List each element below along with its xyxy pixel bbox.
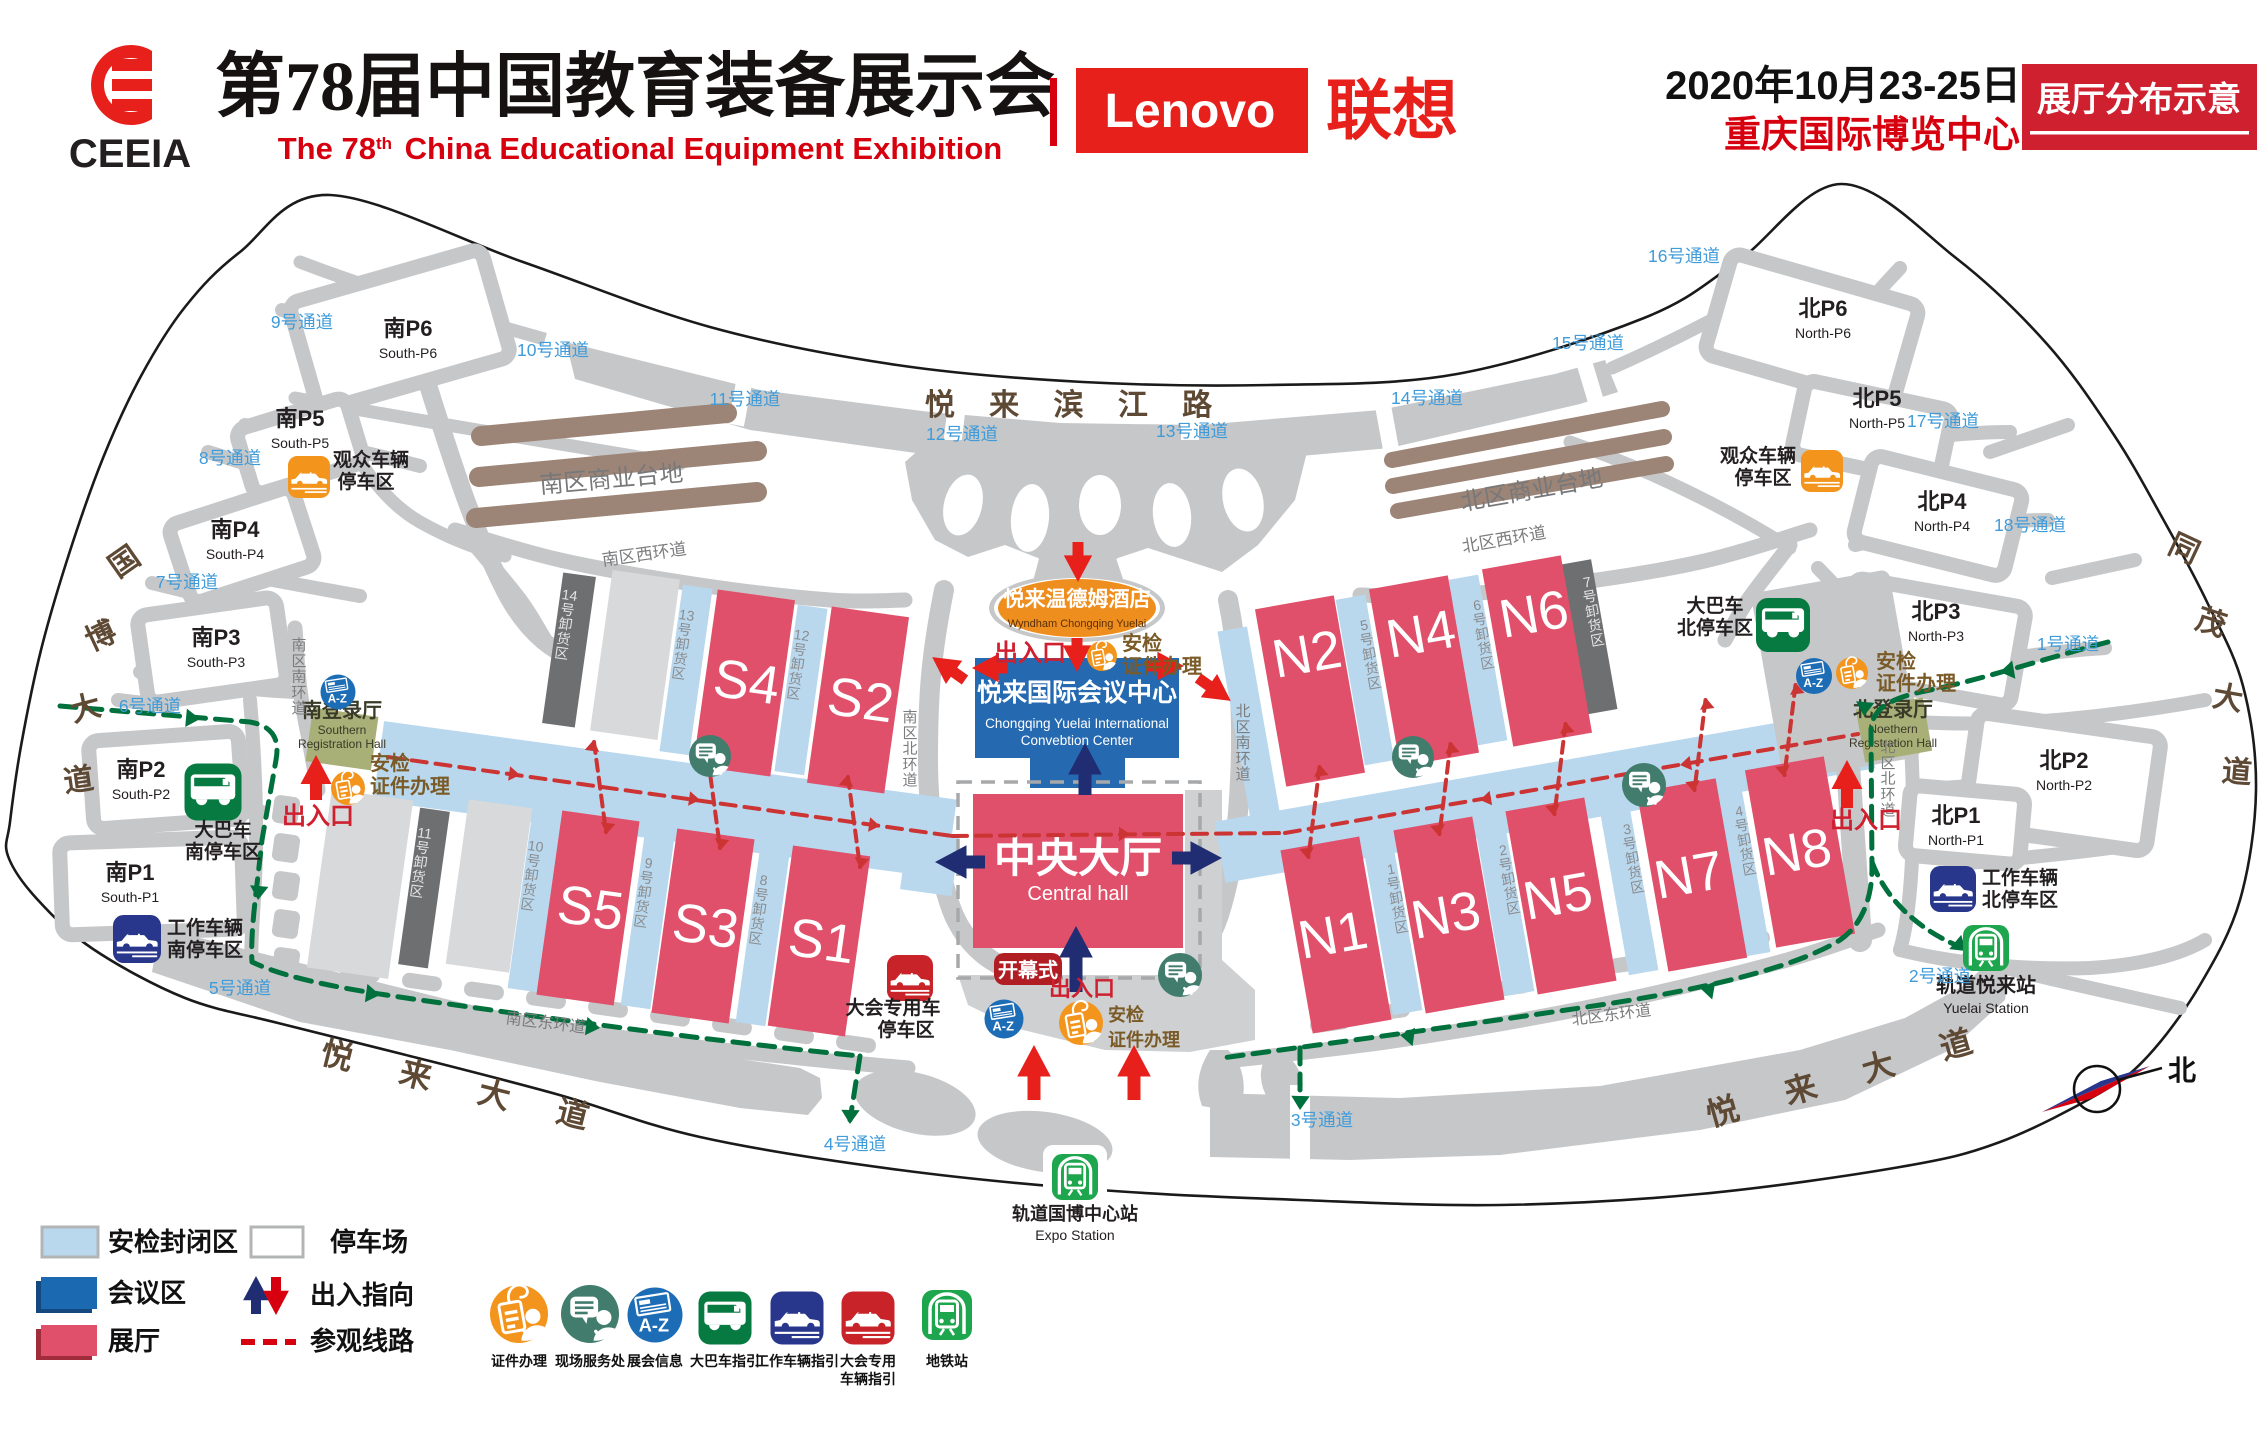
svg-text:N7: N7 <box>1650 840 1728 911</box>
svg-text:8号通道: 8号通道 <box>199 448 261 468</box>
svg-text:3号通道: 3号通道 <box>1291 1110 1353 1130</box>
svg-text:大会专用车: 大会专用车 <box>845 996 940 1019</box>
svg-text:停车区: 停车区 <box>1734 466 1791 489</box>
svg-text:出入口: 出入口 <box>1830 807 1902 834</box>
svg-text:证件办理: 证件办理 <box>491 1353 547 1369</box>
svg-text:Central hall: Central hall <box>1027 883 1128 905</box>
svg-text:大会专用: 大会专用 <box>840 1353 896 1369</box>
svg-text:中央大厅: 中央大厅 <box>994 834 1162 881</box>
svg-text:Convebtion Center: Convebtion Center <box>1021 733 1134 748</box>
svg-text:S2: S2 <box>824 666 898 735</box>
svg-text:大巴车指引: 大巴车指引 <box>690 1353 760 1369</box>
svg-text:会议区: 会议区 <box>108 1278 186 1308</box>
svg-text:4号通道: 4号通道 <box>824 1134 886 1154</box>
svg-text:安检: 安检 <box>1122 631 1162 655</box>
svg-text:大巴车: 大巴车 <box>1686 594 1743 617</box>
svg-text:1号通道: 1号通道 <box>2037 634 2099 654</box>
svg-text:北区南环道: 北区南环道 <box>1235 703 1250 783</box>
svg-text:地铁站: 地铁站 <box>926 1353 968 1369</box>
svg-text:工作车辆: 工作车辆 <box>1982 866 2058 889</box>
svg-text:北P1: 北P1 <box>1932 803 1981 828</box>
svg-text:展会信息: 展会信息 <box>627 1353 683 1369</box>
svg-text:11号通道: 11号通道 <box>710 389 781 409</box>
svg-text:N5: N5 <box>1519 861 1597 932</box>
svg-text:北: 北 <box>2168 1055 2196 1086</box>
svg-text:South-P6: South-P6 <box>379 345 438 361</box>
svg-text:安检封闭区: 安检封闭区 <box>108 1227 238 1257</box>
svg-text:道: 道 <box>2220 755 2253 790</box>
svg-text:2号通道: 2号通道 <box>1909 966 1971 986</box>
svg-text:北停车区: 北停车区 <box>1982 888 2058 911</box>
svg-text:南区北环道: 南区北环道 <box>902 709 917 789</box>
svg-text:10号通道: 10号通道 <box>517 340 589 360</box>
svg-text:停车区: 停车区 <box>877 1018 934 1041</box>
svg-text:South-P3: South-P3 <box>187 654 246 670</box>
svg-text:停车区: 停车区 <box>337 470 394 493</box>
svg-text:18号通道: 18号通道 <box>1994 515 2066 535</box>
svg-text:Expo Station: Expo Station <box>1035 1227 1114 1243</box>
svg-text:7号通道: 7号通道 <box>156 572 218 592</box>
svg-text:Yuelai Station: Yuelai Station <box>1943 1000 2029 1016</box>
svg-text:观众车辆: 观众车辆 <box>333 448 409 471</box>
svg-text:N4: N4 <box>1382 599 1460 670</box>
svg-text:大巴车: 大巴车 <box>194 818 251 841</box>
svg-text:N6: N6 <box>1495 579 1573 650</box>
svg-text:S4: S4 <box>710 648 784 717</box>
svg-text:Registration Hall: Registration Hall <box>298 737 386 751</box>
svg-text:North-P2: North-P2 <box>2036 777 2092 793</box>
svg-text:N1: N1 <box>1294 900 1372 971</box>
svg-text:出入口: 出入口 <box>994 640 1066 667</box>
svg-text:观众车辆: 观众车辆 <box>1720 444 1796 467</box>
svg-text:南P1: 南P1 <box>106 860 155 885</box>
svg-text:6号通道: 6号通道 <box>119 696 181 716</box>
svg-text:轨道国博中心站: 轨道国博中心站 <box>1012 1203 1138 1224</box>
svg-text:North-P3: North-P3 <box>1908 628 1964 644</box>
svg-text:证件办理: 证件办理 <box>1122 654 1202 678</box>
svg-text:North-P6: North-P6 <box>1795 325 1851 341</box>
svg-text:北P5: 北P5 <box>1853 386 1902 411</box>
svg-text:出入口: 出入口 <box>1049 976 1115 1001</box>
svg-text:Noethern: Noethern <box>1868 722 1917 736</box>
svg-text:12号通道: 12号通道 <box>926 424 998 444</box>
svg-text:参观线路: 参观线路 <box>310 1326 415 1356</box>
svg-text:Wyndham Chongqing Yuelai: Wyndham Chongqing Yuelai <box>1008 618 1147 630</box>
svg-text:North-P4: North-P4 <box>1914 518 1970 534</box>
svg-text:2020年10月23-25日: 2020年10月23-25日 <box>1665 64 2021 108</box>
svg-text:安检: 安检 <box>370 751 410 775</box>
svg-text:S5: S5 <box>554 874 628 943</box>
svg-text:17号通道: 17号通道 <box>1907 411 1979 431</box>
svg-text:大: 大 <box>2210 680 2245 718</box>
svg-text:S1: S1 <box>785 907 859 976</box>
svg-text:Chongqing Yuelai International: Chongqing Yuelai International <box>985 716 1169 731</box>
svg-text:重庆国际博览中心: 重庆国际博览中心 <box>1724 114 2020 155</box>
svg-text:证件办理: 证件办理 <box>1876 671 1956 695</box>
svg-text:Lenovo: Lenovo <box>1105 85 1276 138</box>
svg-text:Southern: Southern <box>318 723 367 737</box>
svg-text:North-P5: North-P5 <box>1849 415 1905 431</box>
svg-text:悦来温德姆酒店: 悦来温德姆酒店 <box>1004 587 1151 611</box>
svg-text:9号通道: 9号通道 <box>271 312 333 332</box>
svg-text:北停车区: 北停车区 <box>1677 616 1753 639</box>
svg-text:South-P4: South-P4 <box>206 546 265 562</box>
svg-text:证件办理: 证件办理 <box>370 774 450 798</box>
svg-text:工作车辆: 工作车辆 <box>167 916 243 939</box>
svg-text:停车场: 停车场 <box>330 1227 408 1257</box>
svg-text:南P3: 南P3 <box>192 625 241 650</box>
svg-text:车辆指引: 车辆指引 <box>840 1371 896 1387</box>
svg-text:北P4: 北P4 <box>1918 489 1968 514</box>
svg-text:工作车辆指引: 工作车辆指引 <box>755 1353 839 1369</box>
svg-text:南P4: 南P4 <box>211 517 261 542</box>
svg-text:N8: N8 <box>1758 817 1836 888</box>
svg-text:16号通道: 16号通道 <box>1648 246 1720 266</box>
svg-text:展厅: 展厅 <box>108 1326 160 1356</box>
svg-text:悦来国际会议中心: 悦来国际会议中心 <box>977 679 1177 707</box>
svg-text:CEEIA: CEEIA <box>69 132 191 176</box>
svg-text:5号通道: 5号通道 <box>209 978 271 998</box>
svg-text:出入口: 出入口 <box>282 803 354 830</box>
svg-text:15号通道: 15号通道 <box>1552 333 1624 353</box>
svg-text:14号通道: 14号通道 <box>1391 388 1463 408</box>
svg-text:南P6: 南P6 <box>384 316 433 341</box>
svg-text:道: 道 <box>62 762 96 799</box>
svg-text:证件办理: 证件办理 <box>1108 1029 1180 1050</box>
svg-text:悦 来 滨 江 路: 悦 来 滨 江 路 <box>925 388 1225 422</box>
svg-text:北P6: 北P6 <box>1799 296 1848 321</box>
svg-text:北P3: 北P3 <box>1912 599 1961 624</box>
svg-text:展厅分布示意: 展厅分布示意 <box>2037 81 2241 119</box>
svg-text:南P2: 南P2 <box>117 757 166 782</box>
svg-text:North-P1: North-P1 <box>1928 832 1984 848</box>
svg-text:安检: 安检 <box>1108 1004 1144 1025</box>
svg-text:South-P1: South-P1 <box>101 889 160 905</box>
svg-text:安检: 安检 <box>1876 649 1916 673</box>
svg-text:N2: N2 <box>1268 619 1346 690</box>
svg-text:South-P5: South-P5 <box>271 435 330 451</box>
svg-text:第78届中国教育装备展示会: 第78届中国教育装备展示会 <box>215 48 1055 126</box>
svg-text:N3: N3 <box>1407 880 1485 951</box>
svg-text:南停车区: 南停车区 <box>185 840 261 863</box>
svg-text:南区南环道: 南区南环道 <box>291 637 306 717</box>
svg-text:北P2: 北P2 <box>2040 748 2089 773</box>
svg-text:S3: S3 <box>669 892 743 961</box>
svg-text:出入指向: 出入指向 <box>310 1280 414 1310</box>
svg-text:13号通道: 13号通道 <box>1156 421 1228 441</box>
svg-text:South-P2: South-P2 <box>112 786 171 802</box>
svg-text:南P5: 南P5 <box>276 406 325 431</box>
svg-text:现场服务处: 现场服务处 <box>555 1353 626 1369</box>
svg-text:南停车区: 南停车区 <box>167 938 243 961</box>
svg-text:联想: 联想 <box>1326 73 1458 147</box>
